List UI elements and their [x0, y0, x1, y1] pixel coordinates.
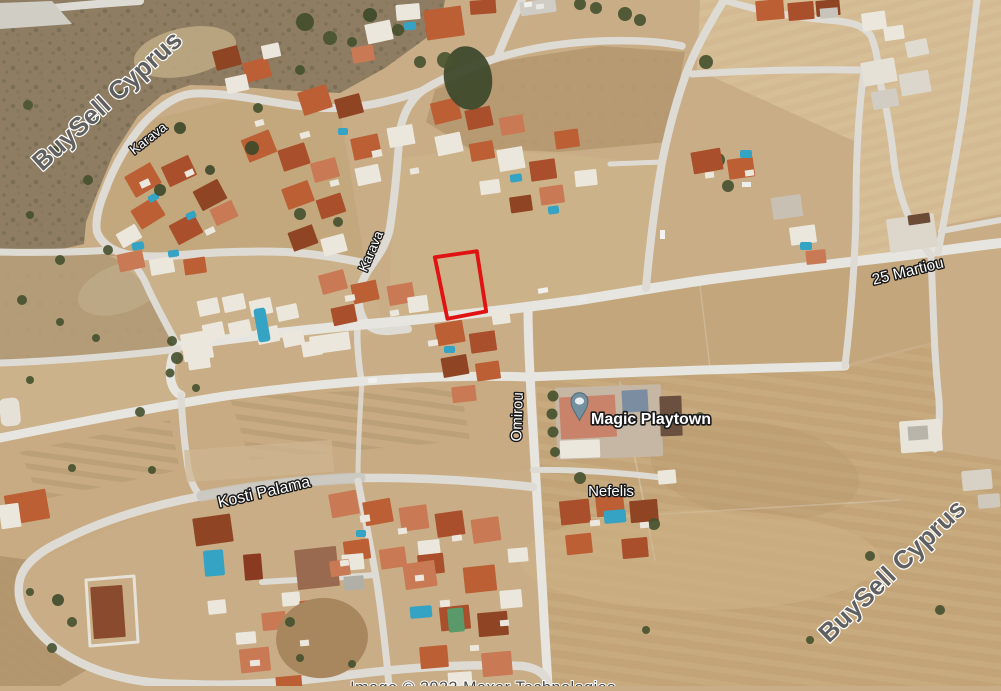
svg-text:Nefelis: Nefelis	[588, 483, 634, 500]
svg-text:Omirou: Omirou	[508, 392, 527, 442]
svg-text:Image © 2022 Maxar Technologie: Image © 2022 Maxar Technologies	[350, 680, 616, 687]
svg-text:Magic Playtown: Magic Playtown	[591, 411, 711, 428]
